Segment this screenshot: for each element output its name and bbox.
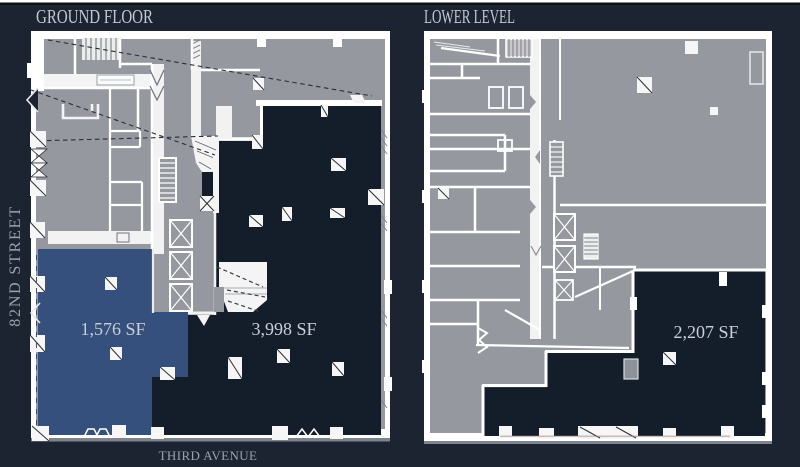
svg-text:GROUND FLOOR: GROUND FLOOR [36, 7, 153, 28]
svg-text:82ND STREET: 82ND STREET [7, 205, 24, 327]
svg-text:3,998 SF: 3,998 SF [251, 319, 316, 339]
svg-text:THIRD AVENUE: THIRD AVENUE [159, 448, 258, 463]
svg-text:2,207 SF: 2,207 SF [673, 322, 738, 342]
svg-text:LOWER LEVEL: LOWER LEVEL [424, 7, 515, 28]
svg-text:1,576 SF: 1,576 SF [80, 319, 145, 339]
